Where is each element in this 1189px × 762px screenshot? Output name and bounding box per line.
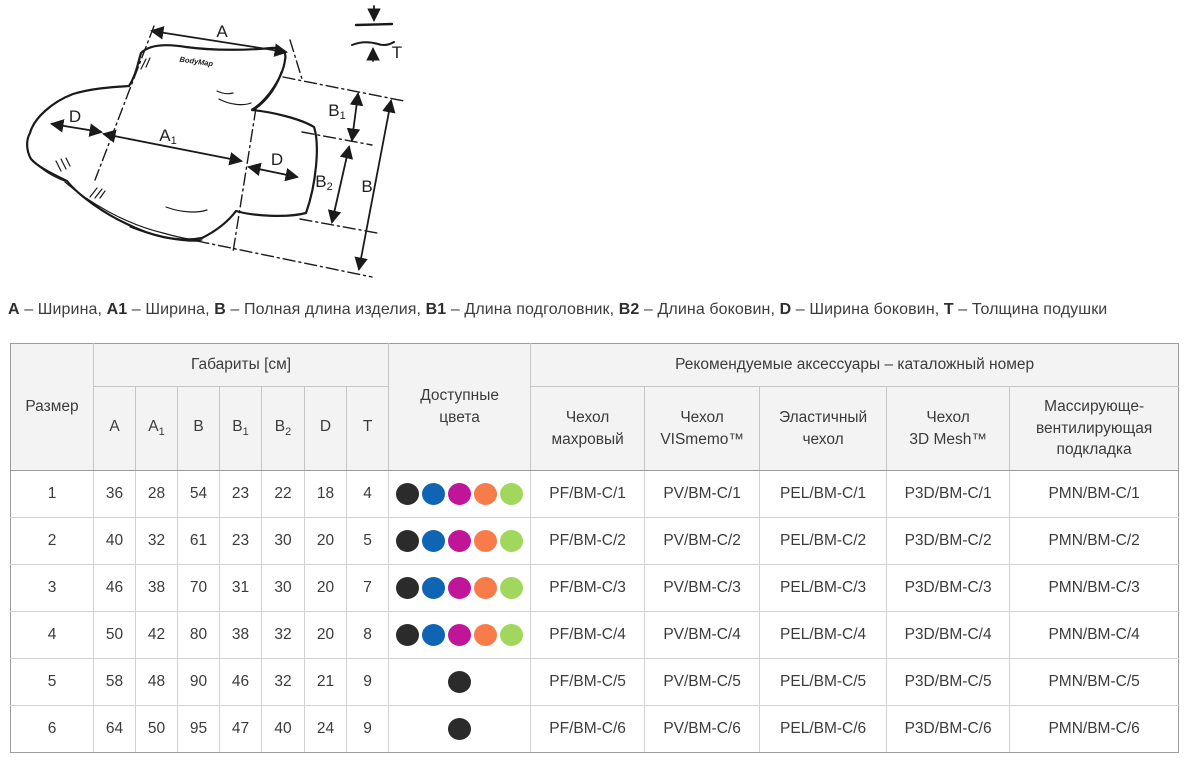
accessory-code-cell: PF/BM-C/6 bbox=[531, 706, 645, 753]
label-B: B bbox=[361, 177, 372, 196]
black-color-dot bbox=[448, 671, 471, 693]
dimension-value-cell: 38 bbox=[220, 612, 262, 659]
label-T: T bbox=[392, 43, 402, 62]
accessory-code-cell: P3D/BM-C/5 bbox=[887, 659, 1010, 706]
accessory-code-cell: PMN/BM-C/3 bbox=[1010, 565, 1179, 612]
table-row: 13628542322184PF/BM-C/1PV/BM-C/1PEL/BM-C… bbox=[11, 471, 1179, 518]
dimension-value-cell: 22 bbox=[262, 471, 305, 518]
orange-color-dot bbox=[474, 577, 497, 599]
accessory-code-cell: PV/BM-C/4 bbox=[645, 612, 760, 659]
accessory-code-cell: PF/BM-C/5 bbox=[531, 659, 645, 706]
accessory-code-cell: PEL/BM-C/4 bbox=[760, 612, 887, 659]
dimension-value-cell: 48 bbox=[136, 659, 178, 706]
available-colors-cell bbox=[389, 565, 531, 612]
accessory-code-cell: PMN/BM-C/2 bbox=[1010, 518, 1179, 565]
dimension-value-cell: 32 bbox=[262, 612, 305, 659]
accessories-group-header: Рекомендуемые аксессуары – каталожный но… bbox=[531, 344, 1179, 387]
product-spec-page: BodyMap A A1 D D B1 B2 B T A – Ширина, A… bbox=[0, 0, 1189, 762]
accessory-code-cell: PV/BM-C/3 bbox=[645, 565, 760, 612]
dimension-value-cell: 24 bbox=[305, 706, 347, 753]
dimension-value-cell: 31 bbox=[220, 565, 262, 612]
dimension-value-cell: 58 bbox=[94, 659, 136, 706]
accessory-code-cell: PEL/BM-C/1 bbox=[760, 471, 887, 518]
available-colors-cell bbox=[389, 518, 531, 565]
dimension-value-cell: 90 bbox=[178, 659, 220, 706]
thickness-bottom-line bbox=[352, 42, 394, 45]
black-color-dot bbox=[396, 624, 419, 646]
dimension-value-cell: 50 bbox=[94, 612, 136, 659]
size-cell: 5 bbox=[11, 659, 94, 706]
label-D-left: D bbox=[69, 107, 81, 126]
dimension-value-cell: 20 bbox=[305, 518, 347, 565]
black-color-dot bbox=[396, 530, 419, 552]
magenta-color-dot bbox=[448, 624, 471, 646]
header-group-row: Размер Габариты [см] Доступные цвета Рек… bbox=[11, 344, 1179, 387]
dimension-value-cell: 42 bbox=[136, 612, 178, 659]
dim-column-header-B2: B2 bbox=[262, 387, 305, 471]
legend-term: D bbox=[780, 301, 792, 318]
dimension-value-cell: 38 bbox=[136, 565, 178, 612]
table-row: 55848904632219PF/BM-C/5PV/BM-C/5PEL/BM-C… bbox=[11, 659, 1179, 706]
magenta-color-dot bbox=[448, 577, 471, 599]
size-table-body: 13628542322184PF/BM-C/1PV/BM-C/1PEL/BM-C… bbox=[11, 471, 1179, 753]
dim-column-header-A: A bbox=[94, 387, 136, 471]
blue-color-dot bbox=[422, 483, 445, 505]
dimension-value-cell: 50 bbox=[136, 706, 178, 753]
table-row: 24032612330205PF/BM-C/2PV/BM-C/2PEL/BM-C… bbox=[11, 518, 1179, 565]
dimension-value-cell: 54 bbox=[178, 471, 220, 518]
accessory-code-cell: PV/BM-C/1 bbox=[645, 471, 760, 518]
accessory-column-header-terry-cover: Чехол махровый bbox=[531, 387, 645, 471]
accessory-column-header-3dmesh-cover: Чехол 3D Mesh™ bbox=[887, 387, 1010, 471]
size-specification-table: Размер Габариты [см] Доступные цвета Рек… bbox=[10, 343, 1179, 753]
arrow-B1 bbox=[352, 94, 358, 140]
dimensions-group-header: Габариты [см] bbox=[94, 344, 389, 387]
black-color-dot bbox=[396, 577, 419, 599]
dimension-value-cell: 80 bbox=[178, 612, 220, 659]
available-colors-cell bbox=[389, 471, 531, 518]
accessory-code-cell: PMN/BM-C/4 bbox=[1010, 612, 1179, 659]
accessory-code-cell: P3D/BM-C/4 bbox=[887, 612, 1010, 659]
accessory-code-cell: PF/BM-C/2 bbox=[531, 518, 645, 565]
dimension-value-cell: 23 bbox=[220, 471, 262, 518]
green-color-dot bbox=[500, 530, 523, 552]
dim-column-header-D: D bbox=[305, 387, 347, 471]
accessory-column-header-vismemo-cover: Чехол VISmemo™ bbox=[645, 387, 760, 471]
arrow-B2 bbox=[332, 147, 349, 222]
dimension-value-cell: 30 bbox=[262, 518, 305, 565]
accessory-column-header-massaging-pad: Массирующе- вентилирующая подкладка bbox=[1010, 387, 1179, 471]
accessory-code-cell: PEL/BM-C/3 bbox=[760, 565, 887, 612]
accessory-code-cell: PF/BM-C/3 bbox=[531, 565, 645, 612]
label-D-right: D bbox=[271, 150, 283, 169]
green-color-dot bbox=[500, 577, 523, 599]
accessory-code-cell: P3D/BM-C/1 bbox=[887, 471, 1010, 518]
accessory-code-cell: P3D/BM-C/2 bbox=[887, 518, 1010, 565]
label-B2: B2 bbox=[315, 172, 332, 193]
table-row: 66450954740249PF/BM-C/6PV/BM-C/6PEL/BM-C… bbox=[11, 706, 1179, 753]
table-row: 34638703130207PF/BM-C/3PV/BM-C/3PEL/BM-C… bbox=[11, 565, 1179, 612]
accessory-code-cell: PEL/BM-C/2 bbox=[760, 518, 887, 565]
dim-column-header-B: B bbox=[178, 387, 220, 471]
accessory-code-cell: PMN/BM-C/6 bbox=[1010, 706, 1179, 753]
dimension-value-cell: 46 bbox=[220, 659, 262, 706]
available-colors-cell bbox=[389, 706, 531, 753]
legend-term: B1 bbox=[426, 301, 447, 318]
size-cell: 4 bbox=[11, 612, 94, 659]
dim-column-header-T: T bbox=[347, 387, 389, 471]
accessory-code-cell: PEL/BM-C/6 bbox=[760, 706, 887, 753]
blue-color-dot bbox=[422, 530, 445, 552]
accessory-code-cell: PV/BM-C/5 bbox=[645, 659, 760, 706]
dimension-value-cell: 9 bbox=[347, 706, 389, 753]
dimension-value-cell: 61 bbox=[178, 518, 220, 565]
dimension-value-cell: 40 bbox=[94, 518, 136, 565]
accessory-code-cell: P3D/BM-C/3 bbox=[887, 565, 1010, 612]
dimension-value-cell: 46 bbox=[94, 565, 136, 612]
label-B1: B1 bbox=[328, 101, 345, 122]
dimension-value-cell: 5 bbox=[347, 518, 389, 565]
accessory-code-cell: PEL/BM-C/5 bbox=[760, 659, 887, 706]
accessory-code-cell: PF/BM-C/1 bbox=[531, 471, 645, 518]
black-color-dot bbox=[396, 483, 419, 505]
size-cell: 3 bbox=[11, 565, 94, 612]
dimension-value-cell: 32 bbox=[136, 518, 178, 565]
accessory-code-cell: PMN/BM-C/1 bbox=[1010, 471, 1179, 518]
thickness-top-line bbox=[356, 24, 392, 25]
dimension-value-cell: 28 bbox=[136, 471, 178, 518]
dimension-value-cell: 23 bbox=[220, 518, 262, 565]
dimension-value-cell: 20 bbox=[305, 612, 347, 659]
dimension-value-cell: 8 bbox=[347, 612, 389, 659]
legend-term: A bbox=[8, 301, 20, 318]
pillow-diagram-svg: BodyMap A A1 D D B1 B2 B T bbox=[0, 0, 470, 296]
dimension-value-cell: 40 bbox=[262, 706, 305, 753]
blue-color-dot bbox=[422, 624, 445, 646]
dimension-value-cell: 95 bbox=[178, 706, 220, 753]
dimension-value-cell: 47 bbox=[220, 706, 262, 753]
magenta-color-dot bbox=[448, 483, 471, 505]
dimension-value-cell: 70 bbox=[178, 565, 220, 612]
label-A: A bbox=[216, 22, 228, 41]
colors-column-header: Доступные цвета bbox=[389, 344, 531, 471]
dimension-value-cell: 30 bbox=[262, 565, 305, 612]
black-color-dot bbox=[448, 718, 471, 740]
accessory-code-cell: P3D/BM-C/6 bbox=[887, 706, 1010, 753]
blue-color-dot bbox=[422, 577, 445, 599]
legend-term: T bbox=[944, 301, 954, 318]
orange-color-dot bbox=[474, 530, 497, 552]
size-cell: 1 bbox=[11, 471, 94, 518]
green-color-dot bbox=[500, 624, 523, 646]
magenta-color-dot bbox=[448, 530, 471, 552]
table-row: 45042803832208PF/BM-C/4PV/BM-C/4PEL/BM-C… bbox=[11, 612, 1179, 659]
dimension-value-cell: 36 bbox=[94, 471, 136, 518]
header-columns-row: A A1 B B1 B2 D T Чехол махровый Чехол VI… bbox=[11, 387, 1179, 471]
accessory-code-cell: PF/BM-C/4 bbox=[531, 612, 645, 659]
size-cell: 6 bbox=[11, 706, 94, 753]
legend-term: A1 bbox=[107, 301, 128, 318]
accessory-code-cell: PV/BM-C/2 bbox=[645, 518, 760, 565]
dimension-value-cell: 18 bbox=[305, 471, 347, 518]
dimension-value-cell: 21 bbox=[305, 659, 347, 706]
dimension-value-cell: 4 bbox=[347, 471, 389, 518]
accessory-column-header-elastic-cover: Эластичный чехол bbox=[760, 387, 887, 471]
accessory-code-cell: PV/BM-C/6 bbox=[645, 706, 760, 753]
dimension-value-cell: 7 bbox=[347, 565, 389, 612]
dim-column-header-A1: A1 bbox=[136, 387, 178, 471]
size-column-header: Размер bbox=[11, 344, 94, 471]
dimension-value-cell: 20 bbox=[305, 565, 347, 612]
size-cell: 2 bbox=[11, 518, 94, 565]
dimension-value-cell: 64 bbox=[94, 706, 136, 753]
available-colors-cell bbox=[389, 659, 531, 706]
dimension-legend: A – Ширина, A1 – Ширина, B – Полная длин… bbox=[8, 301, 1107, 319]
dimension-value-cell: 32 bbox=[262, 659, 305, 706]
pillow-dimension-diagram: BodyMap A A1 D D B1 B2 B T bbox=[0, 0, 470, 296]
available-colors-cell bbox=[389, 612, 531, 659]
orange-color-dot bbox=[474, 483, 497, 505]
accessory-code-cell: PMN/BM-C/5 bbox=[1010, 659, 1179, 706]
green-color-dot bbox=[500, 483, 523, 505]
dim-column-header-B1: B1 bbox=[220, 387, 262, 471]
orange-color-dot bbox=[474, 624, 497, 646]
dimension-value-cell: 9 bbox=[347, 659, 389, 706]
legend-term: B bbox=[214, 301, 226, 318]
legend-term: B2 bbox=[619, 301, 640, 318]
